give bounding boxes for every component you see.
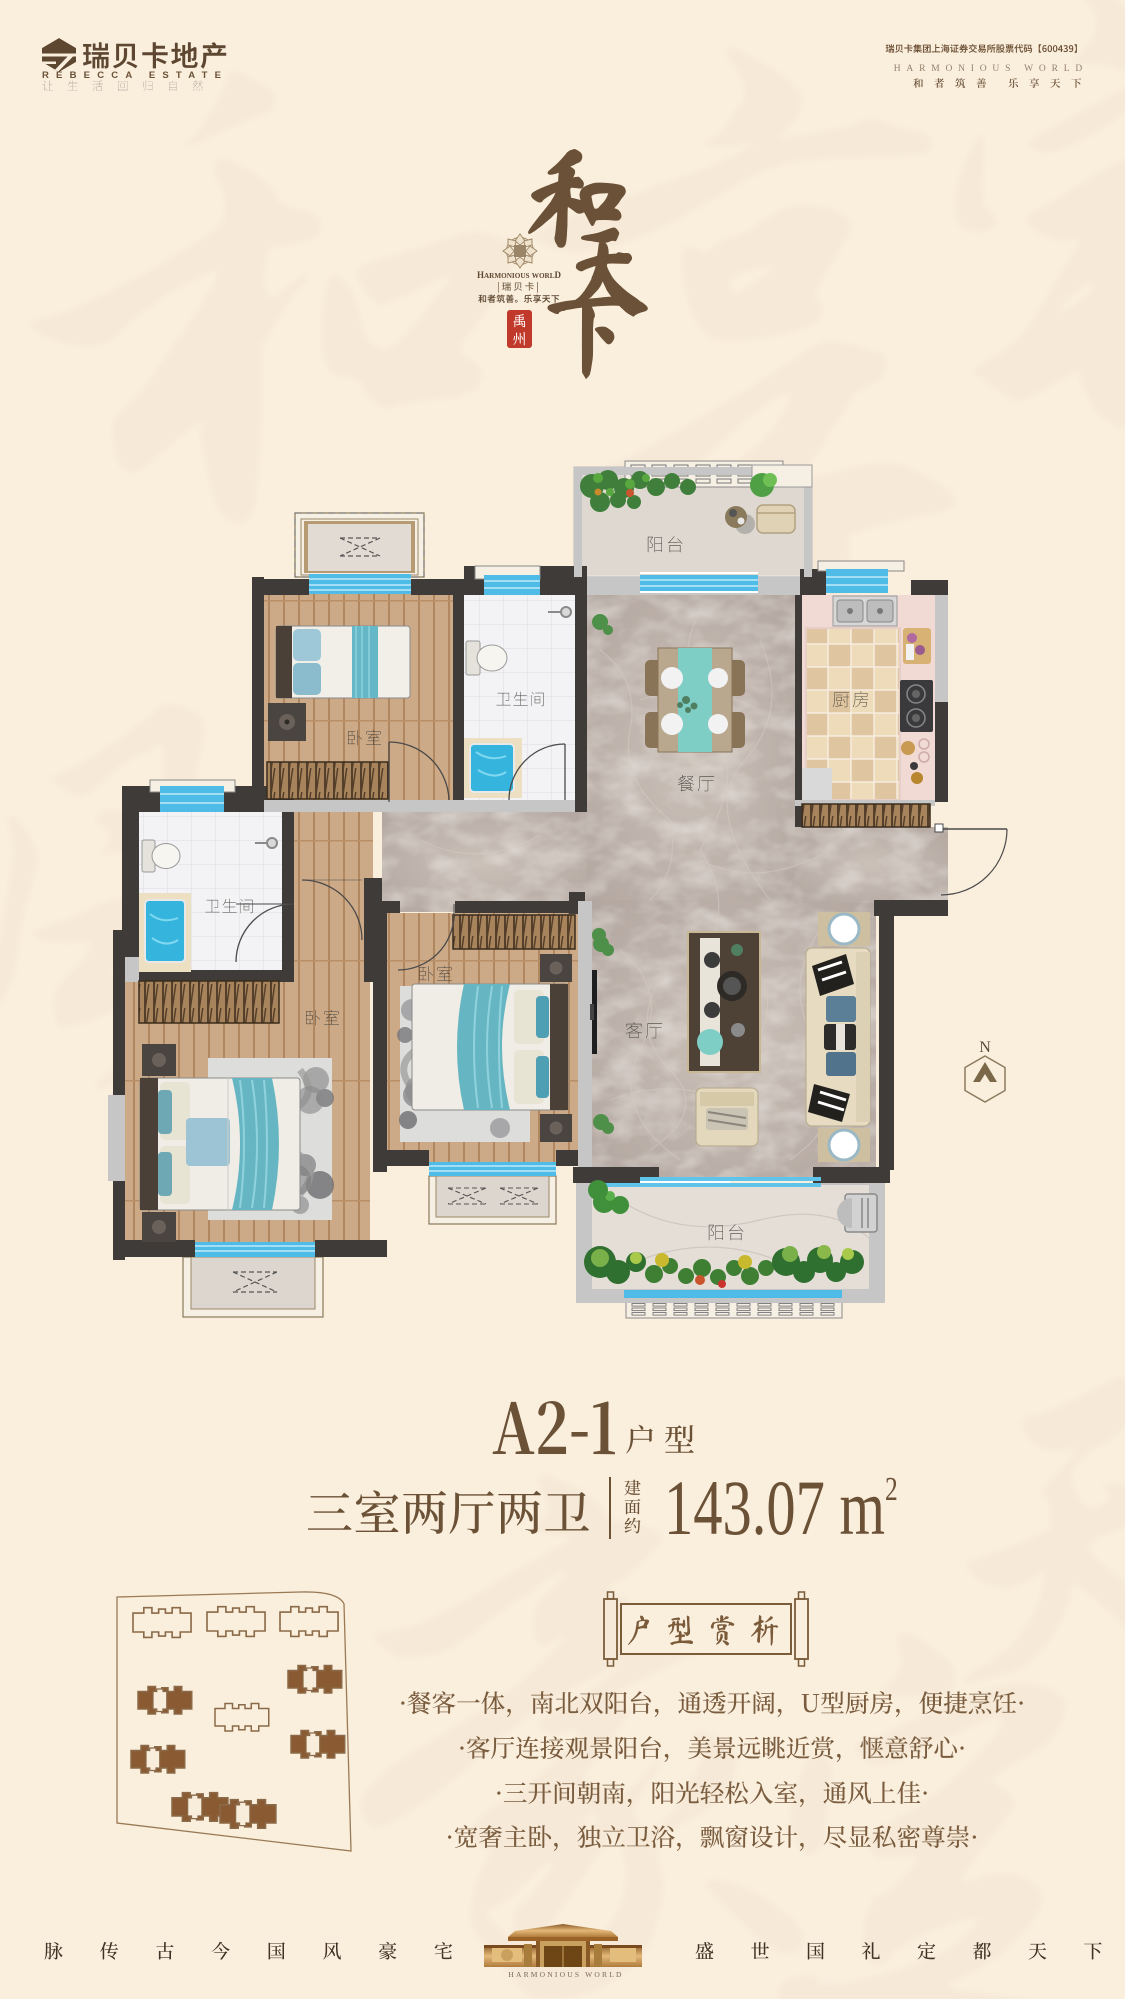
svg-text:N: N [979, 1039, 991, 1056]
svg-text:REBECCA ESTATE: REBECCA ESTATE [42, 70, 228, 81]
svg-text:HARMONIOUS WORLD: HARMONIOUS WORLD [894, 64, 1088, 74]
svg-text:143.07 m2: 143.07 m2 [664, 1465, 898, 1551]
svg-text:HARMONIOUS WORLD: HARMONIOUS WORLD [508, 1970, 623, 1979]
svg-text:HARMONIOUS WORLD: HARMONIOUS WORLD [477, 270, 562, 280]
